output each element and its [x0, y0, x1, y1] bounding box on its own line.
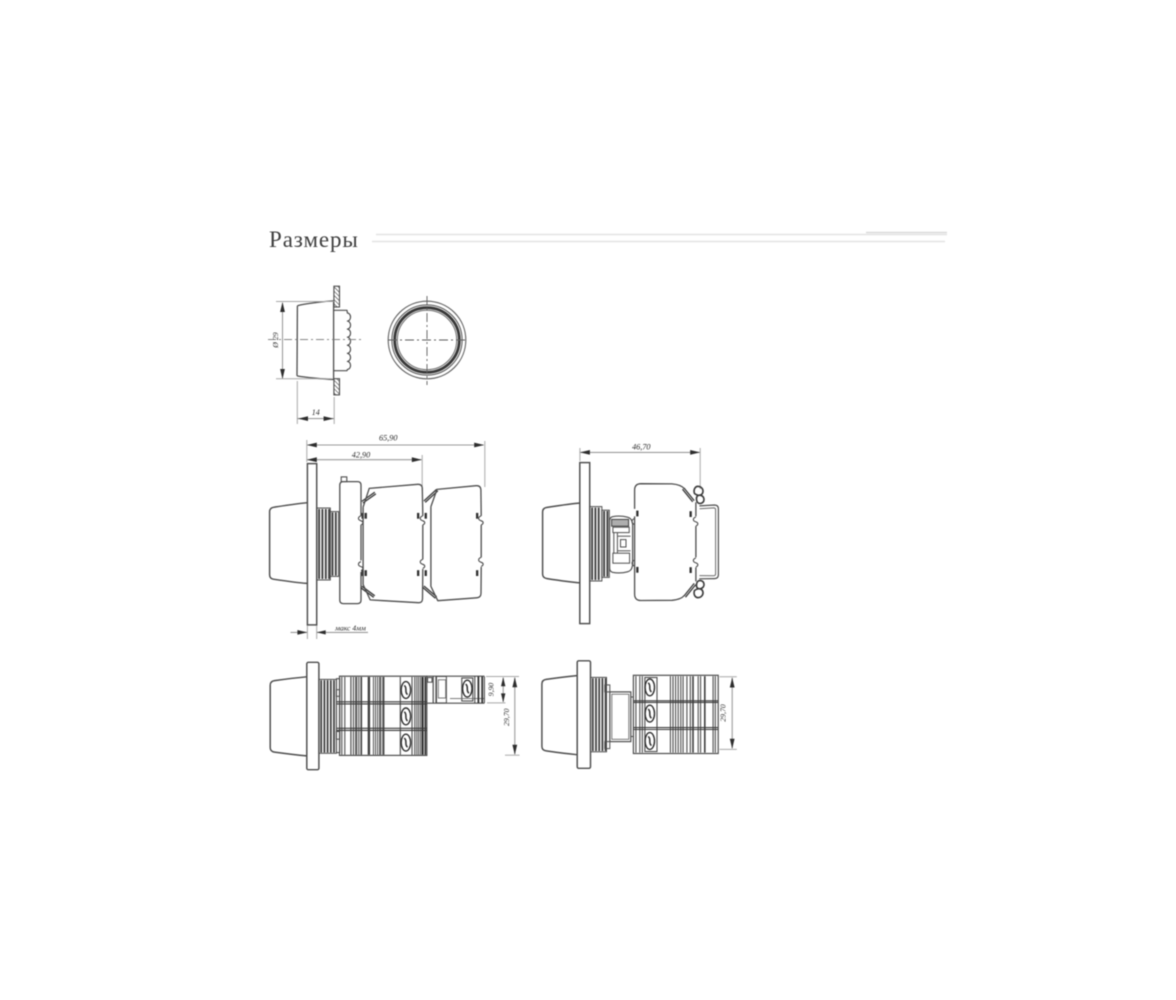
svg-text:14: 14: [312, 408, 320, 417]
svg-text:42,90: 42,90: [352, 450, 370, 459]
svg-text:29,70: 29,70: [502, 708, 511, 726]
svg-text:9,90: 9,90: [487, 683, 496, 697]
svg-text:46,70: 46,70: [632, 443, 650, 452]
svg-text:Ø 29: Ø 29: [271, 332, 280, 348]
svg-text:65,90: 65,90: [379, 434, 397, 443]
svg-text:29,70: 29,70: [718, 704, 727, 722]
svg-text:Размеры: Размеры: [269, 227, 359, 252]
svg-text:макс 4мм: макс 4мм: [334, 624, 366, 633]
